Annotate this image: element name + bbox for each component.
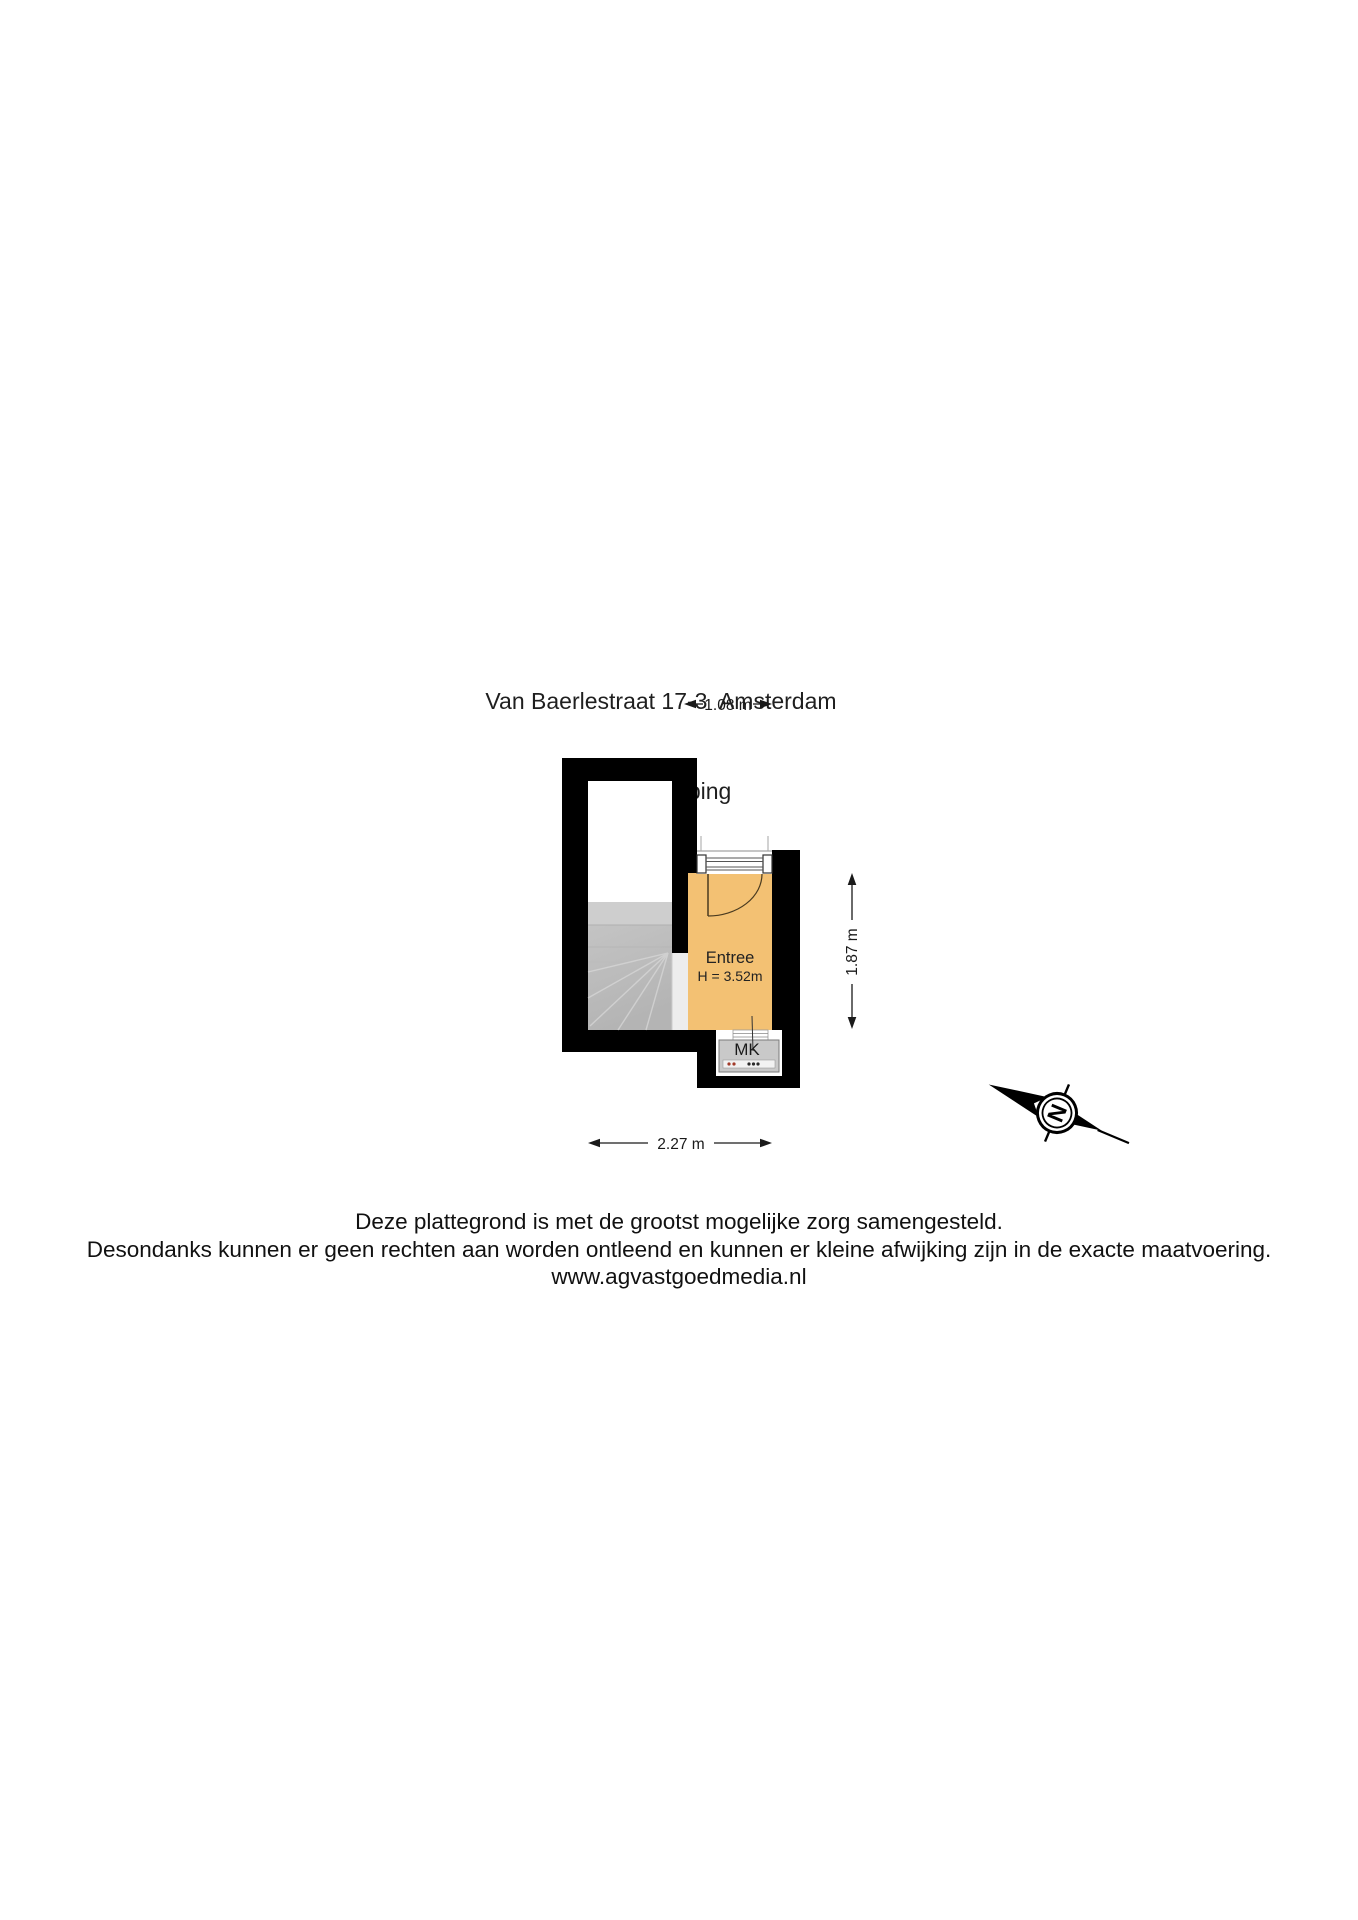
wall-bottom-left — [562, 1030, 697, 1052]
door-jamb-right — [763, 855, 772, 873]
dim-right-label: 1.87 m — [844, 928, 861, 975]
dimension-top: 1.08 m — [684, 697, 772, 714]
disclaimer-line1: Deze plattegrond is met de grootst mogel… — [0, 1208, 1358, 1236]
entree-room: Entree H = 3.52m — [688, 836, 772, 1030]
north-compass: N — [977, 1056, 1141, 1172]
dimension-right: 1.87 m — [844, 873, 861, 1029]
disclaimer-website: www.agvastgoedmedia.nl — [0, 1263, 1358, 1291]
dim-bottom-label: 2.27 m — [657, 1136, 704, 1153]
stairs-landing — [588, 902, 672, 925]
stair-opening-strip — [672, 953, 688, 1030]
dimension-bottom: 2.27 m — [588, 1136, 772, 1153]
dim-top-label: 1.08 m — [704, 697, 751, 714]
room-label: Entree — [706, 949, 755, 967]
door-jamb-left — [697, 855, 706, 873]
disclaimer-line2: Desondanks kunnen er geen rechten aan wo… — [0, 1236, 1358, 1264]
floorplan-svg: Entree H = 3.52m MK 1 — [0, 0, 1358, 1920]
mk-label: MK — [734, 1040, 760, 1059]
room-height-label: H = 3.52m — [698, 968, 763, 984]
wall-left — [562, 758, 588, 1052]
page: Van Baerlestraat 17-3 Amsterdam 2e Verdi… — [0, 0, 1358, 1920]
compass-tail-line — [1098, 1130, 1129, 1143]
disclaimer: Deze plattegrond is met de grootst mogel… — [0, 1208, 1358, 1291]
